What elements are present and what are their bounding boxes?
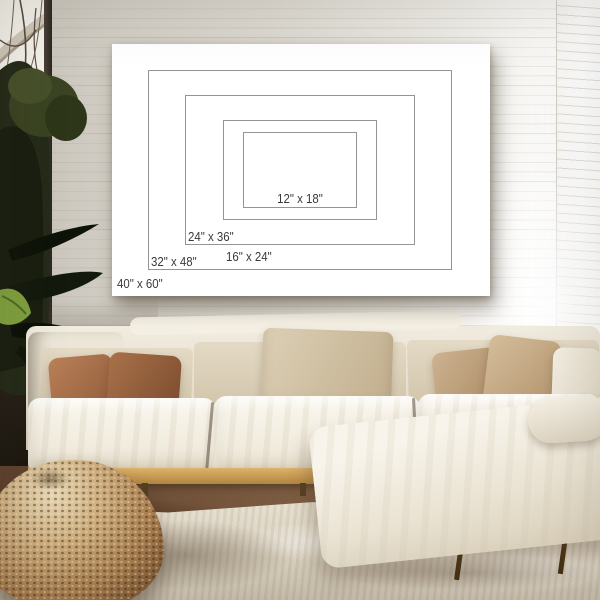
sofa-leg xyxy=(300,483,306,496)
bolster-pillow xyxy=(526,393,600,444)
size-chart-poster: 40" x 60" 32" x 48" 24" x 36" 16" x 24" … xyxy=(112,44,490,296)
size-label-12x18: 12" x 18" xyxy=(250,192,350,205)
living-room-scene: 40" x 60" 32" x 48" 24" x 36" 16" x 24" … xyxy=(0,0,600,600)
size-label-24x36: 24" x 36" xyxy=(188,230,234,243)
size-label-32x48: 32" x 48" xyxy=(151,255,197,268)
size-label-16x24: 16" x 24" xyxy=(226,250,272,263)
size-label-40x60: 40" x 60" xyxy=(117,277,163,290)
